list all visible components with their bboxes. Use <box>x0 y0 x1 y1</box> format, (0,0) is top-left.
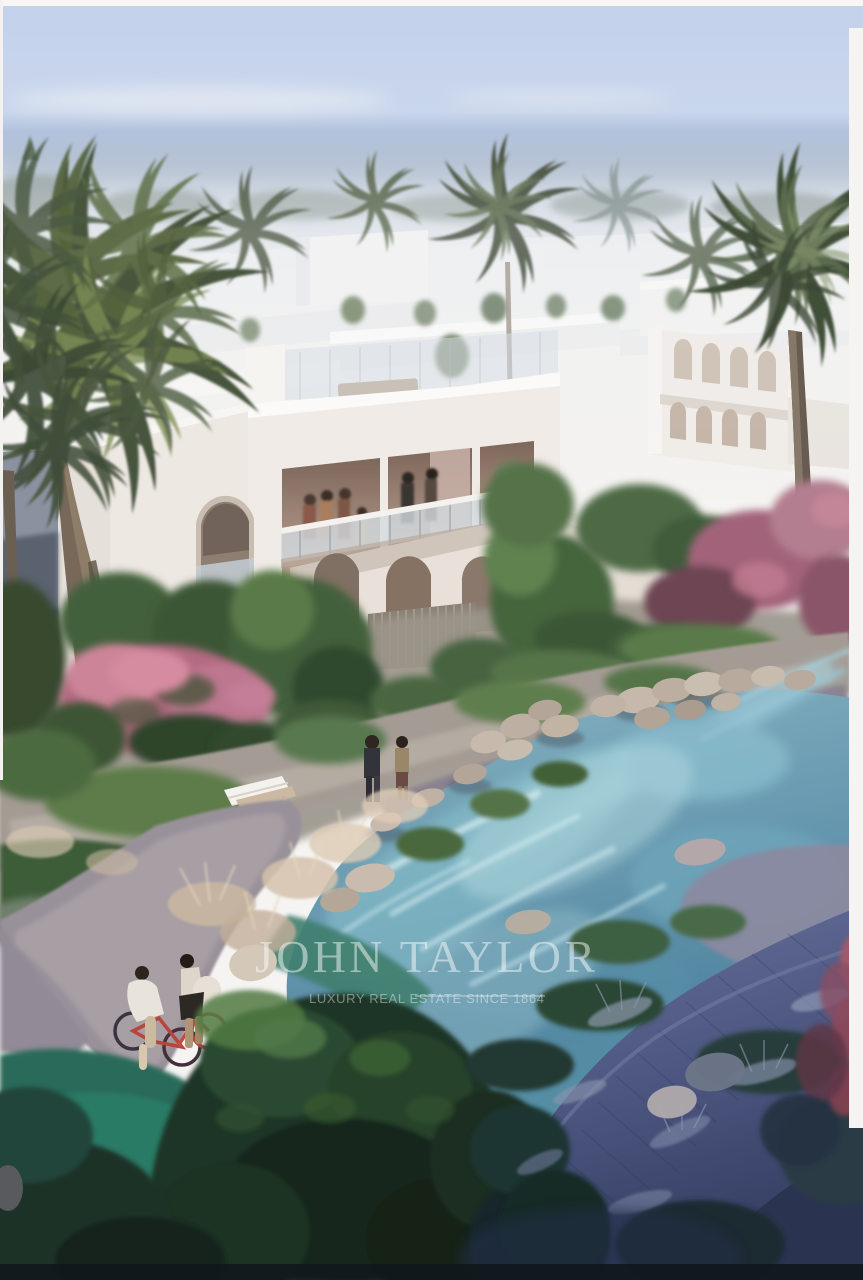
svg-text:LUXURY REAL ESTATE SINCE 1864: LUXURY REAL ESTATE SINCE 1864 <box>309 991 547 1006</box>
svg-text:JOHN TAYLOR: JOHN TAYLOR <box>255 931 601 982</box>
